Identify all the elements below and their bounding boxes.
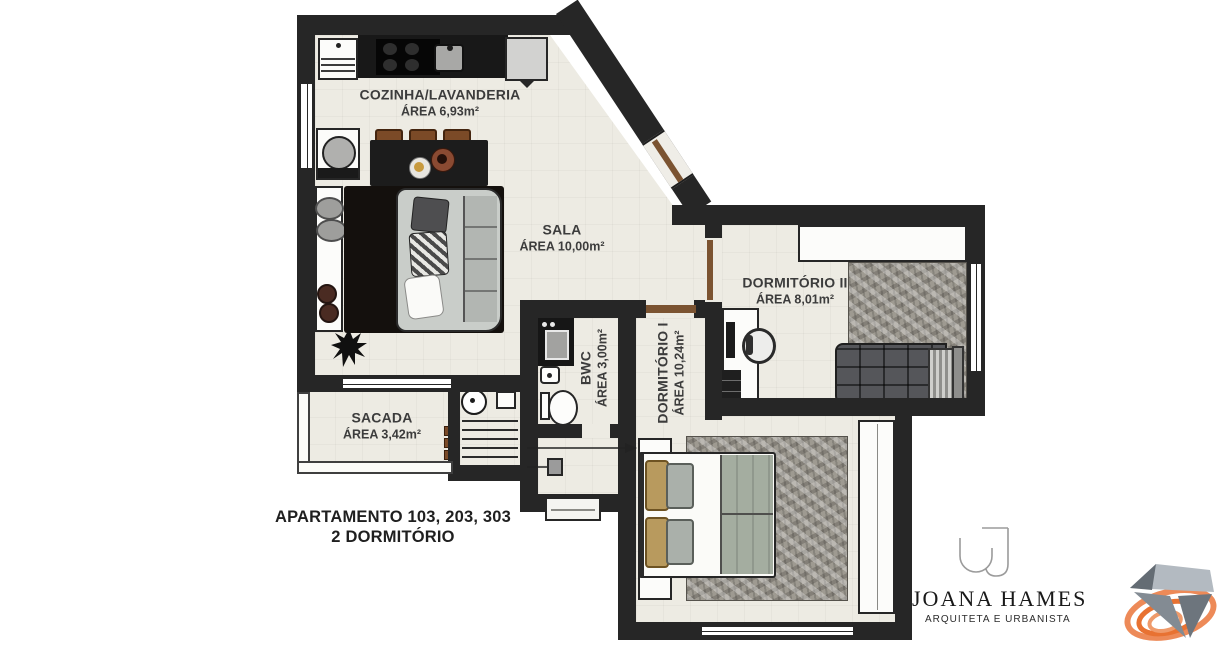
- pot-center: [437, 154, 447, 164]
- pillow-gray: [666, 519, 694, 565]
- closet-divider: [877, 424, 878, 610]
- label-sacada: SACADA ÁREA 3,42m²: [343, 409, 421, 442]
- stair-column-center: [470, 398, 475, 403]
- faucet: [447, 45, 453, 51]
- decor-oval: [315, 197, 344, 220]
- pillow-gray: [666, 463, 694, 509]
- plant-icon: [331, 325, 367, 371]
- bwc-door-opening: [582, 424, 610, 438]
- room-area: ÁREA 6,93m²: [360, 104, 521, 120]
- stair-landing-box: [496, 391, 516, 409]
- room-name: SACADA: [343, 409, 421, 427]
- kitchen-island: [370, 140, 488, 186]
- wall-top: [297, 15, 570, 35]
- entry-doormat: [545, 497, 601, 521]
- label-bwc: BWC ÁREA 3,00m²: [577, 329, 610, 407]
- dryer-machine: [316, 128, 360, 180]
- apartment-caption: APARTAMENTO 103, 203, 303 2 DORMITÓRIO: [275, 507, 511, 547]
- bowl-center: [414, 162, 424, 172]
- label-dormitorio1: DORMITÓRIO I ÁREA 10,24m²: [654, 322, 687, 423]
- monitor: [726, 322, 735, 358]
- brand-name: JOANA HAMES: [912, 586, 1087, 612]
- stairs: [462, 420, 518, 466]
- wall-bwc-bottom-b: [610, 424, 618, 438]
- doormat-line: [551, 509, 595, 511]
- dorm1-door-leaf: [646, 305, 696, 313]
- label-sala: SALA ÁREA 10,00m²: [520, 221, 605, 254]
- washbasin: [540, 366, 560, 384]
- headboard-dormitorio2: [952, 346, 964, 402]
- washing-machine: [318, 38, 358, 80]
- kitchen-sink: [434, 44, 464, 72]
- burner: [405, 43, 419, 55]
- basin-drain: [547, 373, 552, 378]
- sofa-back-cushions: [463, 196, 497, 322]
- brand-tagline: ARQUITETA E URBANISTA: [925, 614, 1071, 625]
- burner: [383, 43, 397, 55]
- blanket-seam: [722, 513, 773, 515]
- wall-bwc-bottom-a: [538, 424, 582, 438]
- label-dormitorio2: DORMITÓRIO II ÁREA 8,01m²: [742, 274, 847, 307]
- burner: [383, 59, 397, 71]
- wall-corridor-top: [672, 205, 985, 225]
- room-name: DORMITÓRIO II: [742, 274, 847, 292]
- wall-dorm1-door-stub-a: [636, 300, 646, 318]
- toilet-bowl: [548, 390, 578, 426]
- entry-door-leaf: [652, 139, 683, 182]
- cabinet-door-mark: [520, 81, 534, 88]
- dormitorio1-window: [700, 625, 855, 637]
- washer-vents: [321, 58, 355, 74]
- double-bed: [638, 452, 776, 578]
- dormitorio2-window: [969, 262, 983, 373]
- sofa-dark-cushion: [410, 196, 449, 234]
- pot: [431, 148, 455, 172]
- room-area: ÁREA 3,00m²: [595, 329, 611, 407]
- room-name: BWC: [577, 329, 595, 407]
- wall-dorm2-bottom: [705, 398, 985, 416]
- room-name: COZINHA/LAVANDERIA: [360, 86, 521, 104]
- sofa-white-pillow: [403, 274, 444, 321]
- shower: [538, 318, 574, 366]
- label-cozinha: COZINHA/LAVANDERIA ÁREA 6,93m²: [360, 86, 521, 119]
- decor-bowl: [317, 284, 337, 304]
- dorm2-door-opening: [705, 238, 722, 302]
- fridge-cabinet: [505, 37, 548, 81]
- bowl: [409, 157, 431, 179]
- hall-fixture: [547, 458, 563, 476]
- desk-chair: [742, 328, 776, 364]
- closet-dormitorio1: [858, 420, 895, 614]
- monogram-icon: [952, 520, 1022, 586]
- closet-dormitorio2: [798, 225, 967, 262]
- room-area: ÁREA 10,00m²: [520, 239, 605, 255]
- pillow-dormitorio2: [928, 348, 954, 400]
- headboard: [640, 454, 644, 576]
- blanket: [720, 455, 773, 574]
- burner: [405, 59, 419, 71]
- sacada-railing-bottom: [297, 461, 453, 474]
- washer-knob: [336, 43, 341, 48]
- caption-line2: 2 DORMITÓRIO: [275, 527, 511, 547]
- stair-column: [461, 389, 487, 415]
- chair-back: [746, 335, 753, 355]
- dryer-base: [318, 168, 358, 178]
- room-area: ÁREA 3,42m²: [343, 427, 421, 443]
- room-area: ÁREA 8,01m²: [742, 292, 847, 308]
- room-name: DORMITÓRIO I: [654, 322, 672, 423]
- wall-stairs-bottom: [450, 465, 538, 481]
- wall-left: [297, 15, 315, 392]
- kitchen-window: [299, 82, 314, 170]
- decor-oval: [316, 219, 347, 242]
- stove: [376, 39, 440, 75]
- dorm2-door-leaf: [707, 240, 713, 300]
- floor-plan-page: COZINHA/LAVANDERIA ÁREA 6,93m² SALA ÁREA…: [0, 0, 1222, 650]
- sofa: [396, 188, 502, 332]
- shower-control: [550, 322, 555, 327]
- caption-line1: APARTAMENTO 103, 203, 303: [275, 507, 511, 527]
- room-area: ÁREA 10,24m²: [672, 322, 688, 423]
- wall-dorm1-right: [895, 416, 912, 640]
- sofa-striped-pillow: [409, 231, 450, 278]
- room-name: SALA: [520, 221, 605, 239]
- shower-control: [542, 322, 547, 327]
- shower-tray: [545, 330, 569, 360]
- gem-logo-icon: [1118, 548, 1222, 648]
- wall-bwc-dorm1: [618, 300, 636, 640]
- dryer-drum: [322, 136, 356, 170]
- sacada-sliding-door: [341, 377, 453, 390]
- decor-bowl: [319, 303, 339, 323]
